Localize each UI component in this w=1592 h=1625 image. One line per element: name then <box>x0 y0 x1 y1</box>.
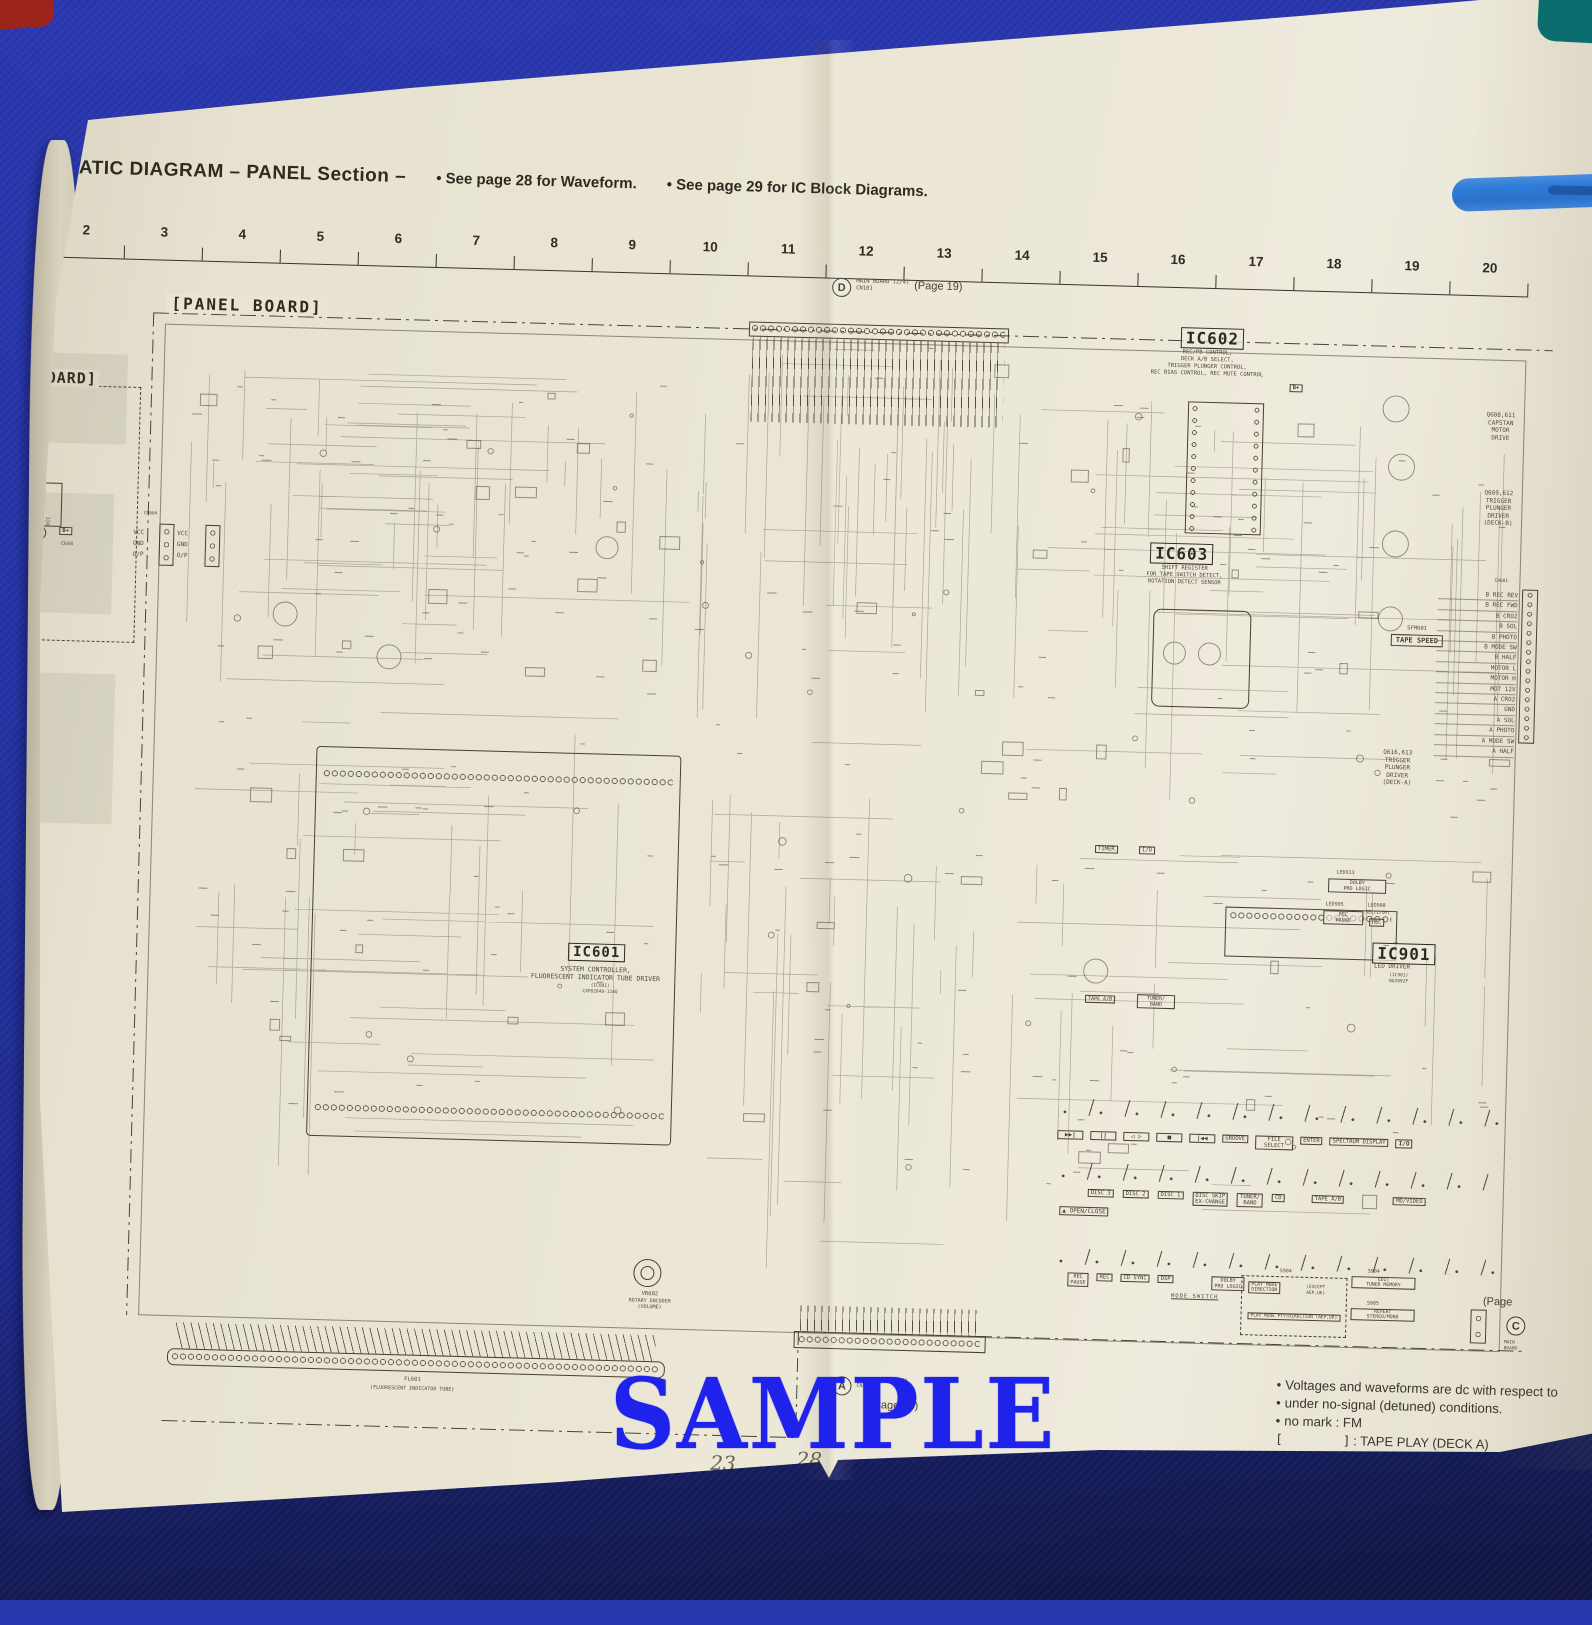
photo-of-schematic-page: { "header": { "number": "3.", "title": "… <box>0 0 1592 1600</box>
teal-corner-object <box>1537 0 1592 44</box>
sample-watermark: SAMPLE <box>610 1366 1056 1463</box>
blue-highlighter-mark <box>1451 173 1592 212</box>
